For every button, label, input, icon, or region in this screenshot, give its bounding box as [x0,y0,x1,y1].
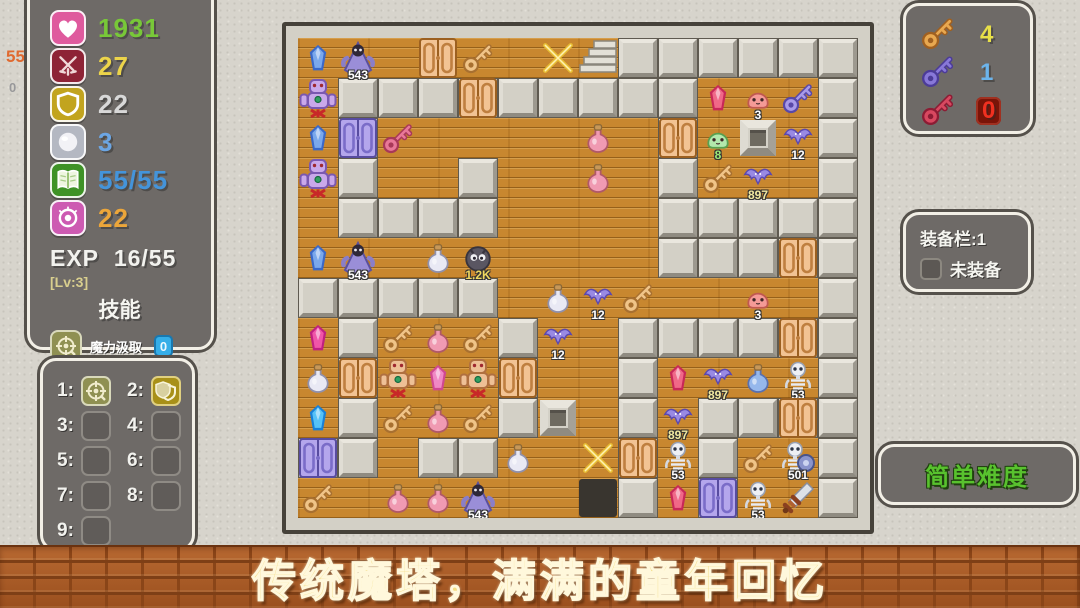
map-wall [698,238,738,278]
door-orange[interactable] [778,238,818,278]
door-orange[interactable] [778,398,818,438]
key-tan[interactable] [458,318,498,358]
stat-value-magic: 22 [98,203,129,234]
gem-red[interactable] [698,78,738,118]
skeleton[interactable]: 53 [778,358,818,398]
potion-pink[interactable] [418,478,458,518]
blob-dark[interactable]: 1.2K [458,238,498,278]
gem-blue[interactable] [298,118,338,158]
key-inventory-panel: 410 [903,3,1033,134]
exp-label: EXP [50,245,99,271]
map-wall [818,318,858,358]
hotbar-slot-8[interactable] [151,481,181,511]
map-wall [618,478,658,518]
map-wall [338,438,378,478]
key-count-red-key: 0 [976,97,1001,125]
skeleton[interactable]: 53 [738,478,778,518]
slime-pink[interactable]: 3 [738,78,778,118]
map-wall [818,198,858,238]
map-wall [578,78,618,118]
door-orange[interactable] [458,78,498,118]
map-wall [618,398,658,438]
hotbar-num: 7: [57,485,81,507]
golem-purple[interactable] [298,158,338,198]
map-wall [338,78,378,118]
map-wall [418,78,458,118]
door-purple[interactable] [298,438,338,478]
hotbar-slot-7[interactable] [81,481,111,511]
key-count-yellow-key: 4 [980,21,993,49]
promo-banner: 传统魔塔，满满的童年回忆 [0,545,1080,608]
map-wall [338,158,378,198]
door-orange[interactable] [618,438,658,478]
key-tan[interactable] [298,478,338,518]
game-map: 54338128975431.2K12312897538975350154353 [282,22,874,534]
block[interactable] [538,398,578,438]
hotbar-panel: 1:2:3:4:5:6:7:8:9: [40,358,195,551]
key-row-yellow-key: 4 [920,16,1030,54]
map-wall [818,78,858,118]
map-wall [818,398,858,438]
sword[interactable] [778,478,818,518]
map-wall [418,438,458,478]
map-wall [658,198,698,238]
map-wall [658,38,698,78]
potion-pink[interactable] [578,118,618,158]
key-count-blue-key: 1 [980,59,993,87]
potion-white[interactable] [298,358,338,398]
golem-purple[interactable] [298,78,338,118]
map-wall [818,38,858,78]
map-wall [338,398,378,438]
key-row-red-key: 0 [920,92,1030,130]
level-badge: [Lv:3] [50,274,211,290]
gem-cyan[interactable] [298,398,338,438]
key-row-blue-key: 1 [920,54,1030,92]
map-wall [338,198,378,238]
bat-purple[interactable]: 12 [538,318,578,358]
map-wall [818,118,858,158]
hero[interactable] [578,478,618,518]
hotbar-num: 1: [57,380,81,402]
map-wall [738,238,778,278]
yellow-key-icon [920,15,956,56]
sword-icon [50,48,86,84]
potion-white[interactable] [538,278,578,318]
potion-white[interactable] [498,438,538,478]
gem-magenta[interactable] [298,318,338,358]
map-wall [458,158,498,198]
gem-blue[interactable] [298,38,338,78]
bat-purple[interactable]: 897 [698,358,738,398]
stat-row-magic: 22 [50,199,211,237]
stats-panel: 19312722355/5522 EXP 16/55 [Lv:3] 技能 魔力汲… [27,0,214,350]
map-wall [818,478,858,518]
door-orange[interactable] [338,358,378,398]
key-tan[interactable] [458,38,498,78]
hotbar-slot-5[interactable] [81,446,111,476]
hotbar-num: 2: [127,380,151,402]
stat-value-defense: 22 [98,89,129,120]
potion-pink[interactable] [578,158,618,198]
map-wall [818,278,858,318]
sparkle[interactable] [578,438,618,478]
door-purple[interactable] [698,478,738,518]
map-wall [418,278,458,318]
equipment-slot[interactable] [920,258,942,280]
stat-value-attack: 27 [98,51,129,82]
bat-purple[interactable]: 12 [778,118,818,158]
map-wall [658,238,698,278]
hotbar-num: 6: [127,450,151,472]
stat-row-defense: 22 [50,85,211,123]
map-wall [618,318,658,358]
map-wall [378,78,418,118]
key-tan[interactable] [378,398,418,438]
equipment-empty-label: 未装备 [950,256,1001,281]
stat-value-hp: 1931 [98,13,160,44]
slime-green[interactable]: 8 [698,118,738,158]
key-tan[interactable] [618,278,658,318]
exp-row: EXP 16/55 [50,245,211,272]
stat-row-hp: 1931 [50,9,211,47]
map-wall [538,78,578,118]
map-grid[interactable]: 54338128975431.2K12312897538975350154353 [298,38,858,518]
map-wall [658,78,698,118]
heart-icon [50,10,86,46]
equipment-panel: 装备栏:1 未装备 [903,212,1031,292]
golem-tan[interactable] [378,358,418,398]
potion-pink[interactable] [418,318,458,358]
map-wall [818,238,858,278]
equipment-title: 装备栏:1 [920,225,1028,250]
skills-title: 技能 [50,294,189,324]
gem-red[interactable] [658,358,698,398]
orb-icon [50,124,86,160]
difficulty-button[interactable]: 简单难度 [878,444,1076,505]
door-orange[interactable] [498,358,538,398]
map-wall [698,38,738,78]
key-blue[interactable] [778,78,818,118]
map-wall [458,278,498,318]
skeleton-shield[interactable]: 501 [778,438,818,478]
attack-buff-mark: 55 [6,47,25,67]
map-wall [418,198,458,238]
book-icon [50,162,86,198]
monster-robe[interactable]: 543 [338,38,378,78]
bat-purple[interactable]: 897 [738,158,778,198]
door-orange[interactable] [658,118,698,158]
hotbar-slot-4[interactable] [151,411,181,441]
potion-white[interactable] [418,238,458,278]
block[interactable] [738,118,778,158]
map-wall [338,278,378,318]
map-wall [778,198,818,238]
hotbar-slot-1[interactable] [81,376,111,406]
monster-robe[interactable]: 543 [338,238,378,278]
red-key-icon [920,91,956,132]
map-wall [338,318,378,358]
map-wall [698,398,738,438]
map-wall [738,318,778,358]
bat-purple[interactable]: 12 [578,278,618,318]
map-wall [618,38,658,78]
skeleton[interactable]: 53 [658,438,698,478]
hotbar-slot-3[interactable] [81,411,111,441]
difficulty-label: 简单难度 [925,457,1029,492]
potion-pink[interactable] [418,398,458,438]
hotbar-num: 9: [57,520,81,542]
gem-pink[interactable] [418,358,458,398]
map-wall [458,438,498,478]
key-tan[interactable] [378,318,418,358]
map-wall [698,198,738,238]
stats-rows: 19312722355/5522 [50,9,211,237]
gem-blue[interactable] [298,238,338,278]
key-tan[interactable] [738,438,778,478]
gem-red[interactable] [658,478,698,518]
stat-row-attack: 27 [50,47,211,85]
map-wall [658,318,698,358]
hotbar-slot-2[interactable] [151,376,181,406]
key-tan[interactable] [698,158,738,198]
map-stone-frame: 54338128975431.2K12312897538975350154353 [286,26,870,530]
golem-tan[interactable] [458,358,498,398]
hotbar-num: 8: [127,485,151,507]
map-wall [378,198,418,238]
shield-icon [50,86,86,122]
stat-value-exp-book: 55/55 [98,165,168,196]
hotbar-slot-6[interactable] [151,446,181,476]
stat-value-orb: 3 [98,127,113,158]
hotbar-num: 3: [57,415,81,437]
door-purple[interactable] [338,118,378,158]
potion-blue[interactable] [738,358,778,398]
map-wall [618,358,658,398]
map-wall [818,358,858,398]
door-orange[interactable] [418,38,458,78]
hotbar-slot-9[interactable] [81,516,111,546]
map-wall [458,198,498,238]
monster-robe[interactable]: 543 [458,478,498,518]
exp-value: 16/55 [114,245,177,271]
potion-pink[interactable] [378,478,418,518]
sparkle[interactable] [538,38,578,78]
skill-count-badge: 0 [154,335,173,357]
bat-purple[interactable]: 897 [658,398,698,438]
stat-row-orb: 3 [50,123,211,161]
key-red[interactable] [378,118,418,158]
map-wall [778,38,818,78]
map-wall [498,398,538,438]
map-wall [698,438,738,478]
map-wall [818,158,858,198]
blue-key-icon [920,53,956,94]
stat-row-exp-book: 55/55 [50,161,211,199]
map-wall [298,278,338,318]
map-wall [698,318,738,358]
game-screen: 55 0 19312722355/5522 EXP 16/55 [Lv:3] 技… [0,0,1080,608]
promo-banner-text: 传统魔塔，满满的童年回忆 [252,545,828,608]
map-wall [738,198,778,238]
hotbar-num: 5: [57,450,81,472]
map-wall [818,438,858,478]
magic-icon [50,200,86,236]
map-wall [498,78,538,118]
map-wall [618,78,658,118]
skill-name: 魔力汲取 [90,337,142,356]
map-wall [658,158,698,198]
key-tan[interactable] [458,398,498,438]
map-wall [738,398,778,438]
counter-mark: 0 [9,80,16,95]
map-wall [738,38,778,78]
stairs[interactable] [578,38,618,78]
door-orange[interactable] [778,318,818,358]
slime-pink[interactable]: 3 [738,278,778,318]
hotbar-num: 4: [127,415,151,437]
map-wall [498,318,538,358]
map-wall [378,278,418,318]
